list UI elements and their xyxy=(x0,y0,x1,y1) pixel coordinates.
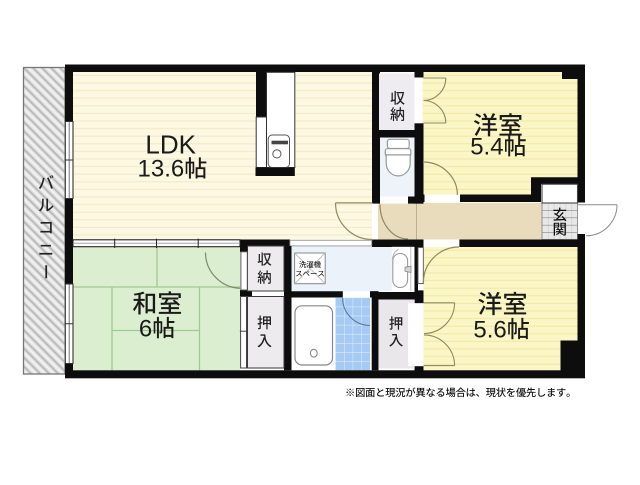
svg-text:5.6: 5.6 xyxy=(473,316,506,343)
svg-text:6: 6 xyxy=(139,315,152,342)
svg-text:5.4: 5.4 xyxy=(470,134,503,161)
svg-text:13.6: 13.6 xyxy=(138,156,185,183)
